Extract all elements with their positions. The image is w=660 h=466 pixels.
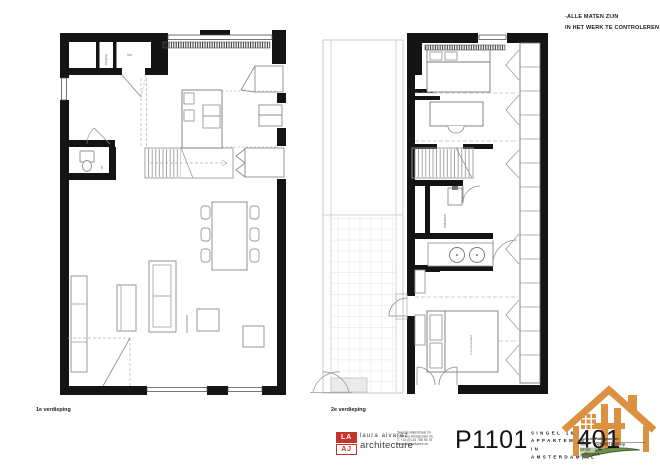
hall-door [122, 75, 147, 148]
bedroom1-furniture [427, 50, 490, 133]
firm-logo-top: LA [336, 432, 357, 443]
info-row: getekend: LA [580, 453, 645, 458]
firm-logo: LA AJ [336, 432, 357, 455]
wc-fixtures [80, 128, 110, 172]
firm-address: Tweede Atjehstraat 24 1094 LG Amsterdam … [397, 431, 447, 446]
drawing-sheet: berging hal wc woonkamer [0, 0, 660, 466]
firm-logo-bottom: AJ [336, 444, 357, 455]
general-note: -ALLE MATEN ZIJN IN HET WERK TE CONTROLE… [565, 12, 659, 34]
label-hall: hal [127, 53, 132, 57]
label-bathroom: badkamer [443, 213, 447, 228]
floorplan-first-floor: berging hal wc woonkamer [60, 30, 286, 395]
label-storage: berging [104, 54, 108, 65]
label-bed: 2 persoonsbed [469, 335, 473, 355]
floorplan-second-floor: badkamer 2 persoonsbed [310, 33, 548, 394]
bathroom-fixtures [428, 186, 517, 266]
note-line-1: -ALLE MATEN ZIJN [565, 12, 659, 23]
roof-terrace [310, 40, 403, 393]
stairs-left-plan [145, 148, 233, 178]
planter-box [331, 378, 367, 392]
living-furniture [71, 261, 264, 372]
address-line: www.lauraalvarez.eu [397, 442, 447, 446]
note-line-2: IN HET WERK TE CONTROLEREN [565, 23, 659, 34]
caption-second-floor: 2e verdieping [331, 407, 366, 413]
info-value: LA [595, 453, 600, 458]
dining-set [201, 202, 259, 270]
info-label: onderdeel: [580, 437, 595, 442]
label-living: woonkamer [185, 314, 189, 333]
stairs-right-plan [412, 148, 473, 178]
radiator-left [163, 42, 270, 48]
caption-first-floor: 1e verdieping [36, 407, 71, 413]
info-label: getekend: [580, 453, 595, 458]
wardrobe-column [506, 43, 540, 383]
bedroom2-furniture [415, 270, 498, 372]
windows-right [478, 33, 507, 43]
drawing-info-table: onderdeel: Plattegronden fase: Definitie… [580, 437, 645, 458]
label-wc: wc [100, 165, 104, 169]
project-number: P1101 [455, 426, 528, 455]
info-value: Plattegronden [595, 437, 619, 442]
wardrobe-door-marks [506, 50, 519, 375]
